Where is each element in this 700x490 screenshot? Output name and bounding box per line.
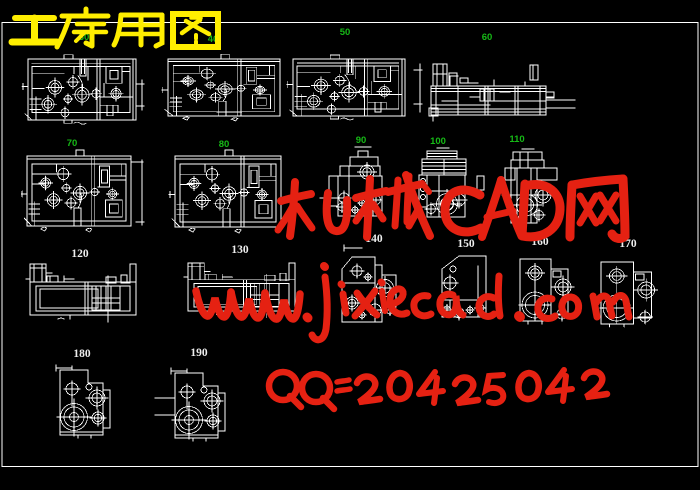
svg-text:50: 50	[340, 27, 351, 38]
svg-text:130: 130	[231, 244, 249, 256]
svg-text:120: 120	[71, 248, 89, 260]
svg-text:90: 90	[356, 135, 367, 146]
svg-text:190: 190	[190, 347, 208, 359]
svg-text:150: 150	[457, 238, 475, 250]
svg-text:70: 70	[67, 138, 78, 149]
svg-text:60: 60	[482, 32, 493, 43]
svg-text:80: 80	[219, 139, 230, 150]
svg-text:110: 110	[509, 134, 524, 145]
svg-text:100: 100	[430, 136, 446, 147]
svg-text:180: 180	[73, 348, 91, 360]
